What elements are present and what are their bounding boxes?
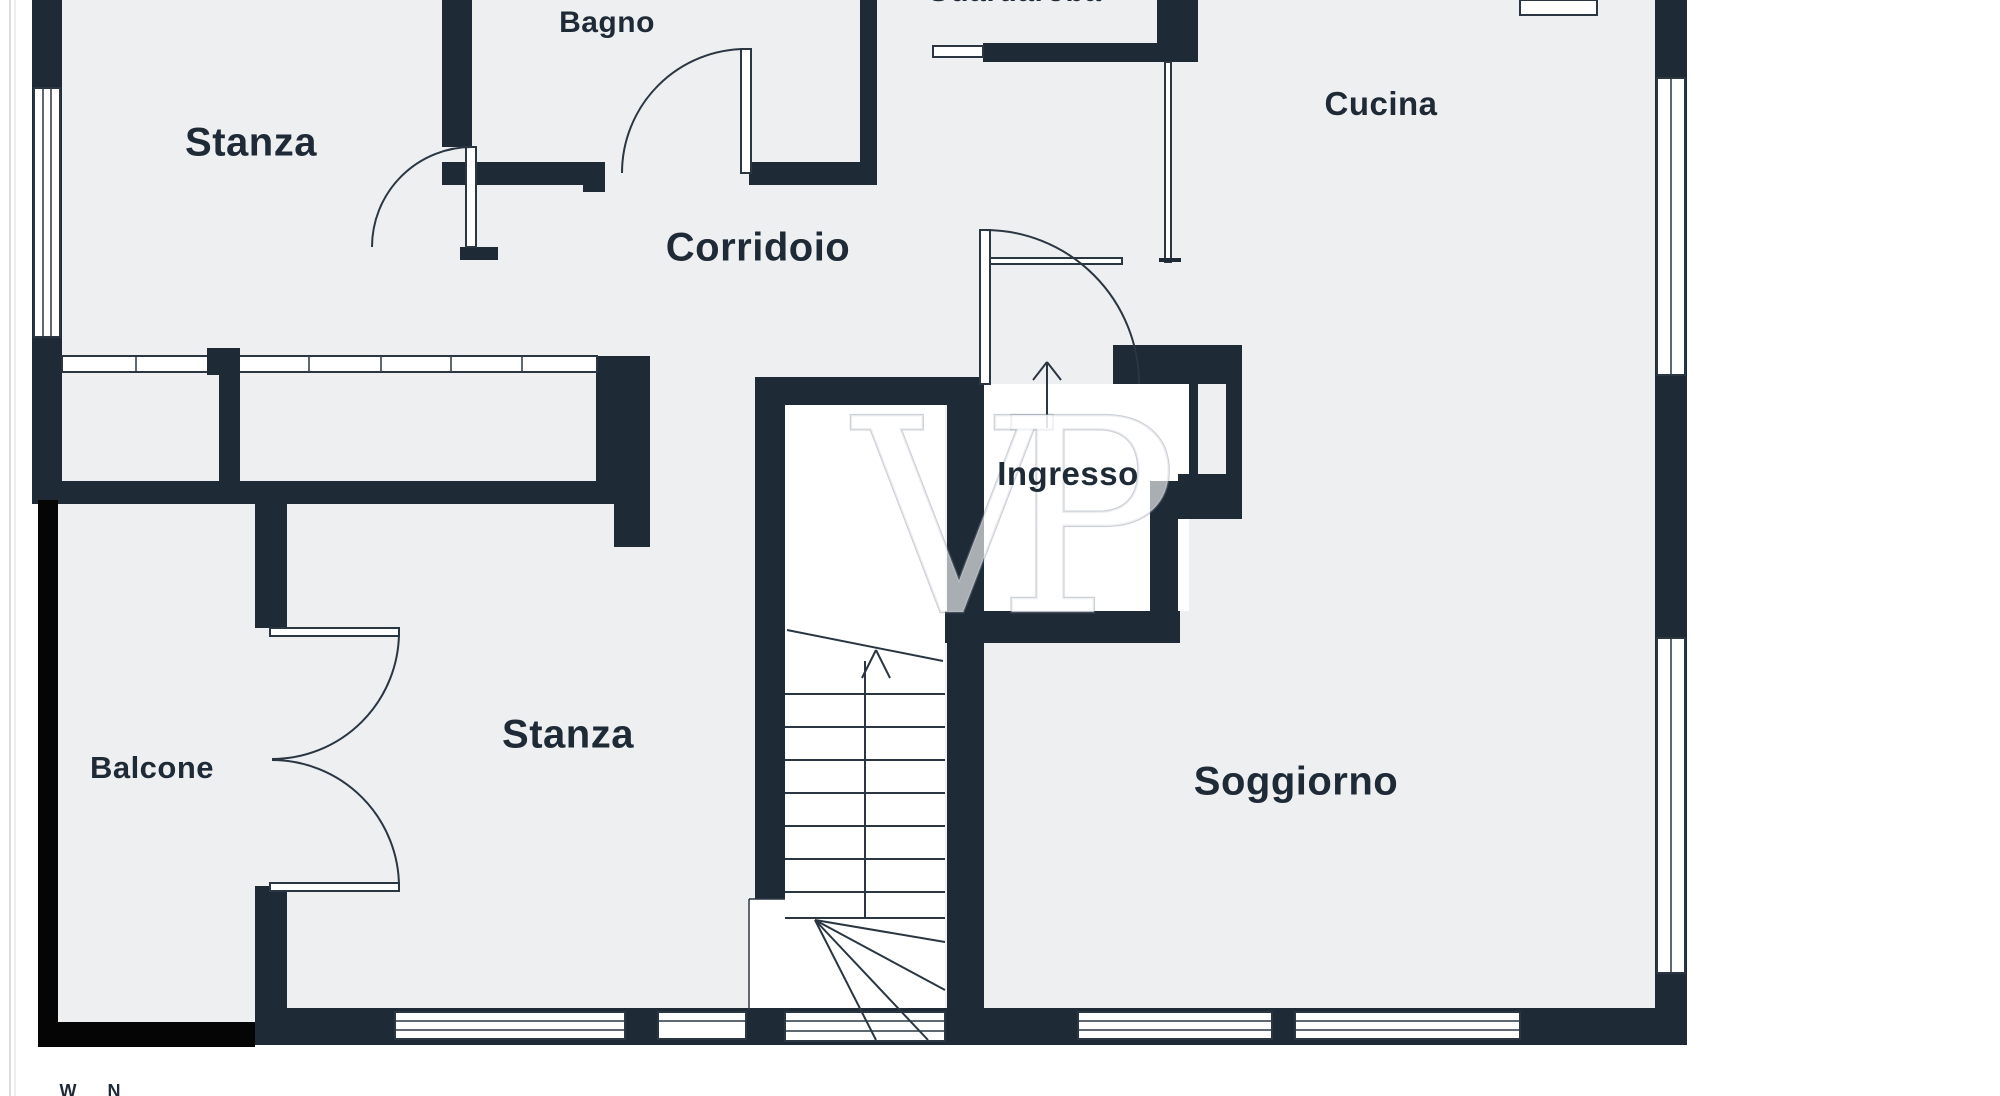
room-label-cucina: Cucina: [1324, 85, 1437, 123]
floorplan-canvas: VP Stanza Bagno Corridoio Cucina Ingress…: [0, 0, 2000, 1096]
room-label-guardaroba-partial: Guardaroba: [926, 0, 1101, 9]
page-edge-line: [10, 0, 15, 1096]
room-label-stanza-bottom: Stanza: [502, 713, 634, 758]
room-label-soggiorno: Soggiorno: [1194, 760, 1398, 805]
room-label-bagno: Bagno: [559, 6, 655, 40]
compass-west-label: W: [60, 1081, 77, 1096]
watermark: VP: [849, 361, 1169, 676]
room-label-stanza-top: Stanza: [185, 121, 317, 166]
room-label-ingresso: Ingresso: [997, 455, 1139, 493]
compass-north-label: N: [108, 1081, 121, 1096]
room-label-corridoio: Corridoio: [666, 226, 850, 271]
room-label-balcone: Balcone: [90, 750, 214, 786]
